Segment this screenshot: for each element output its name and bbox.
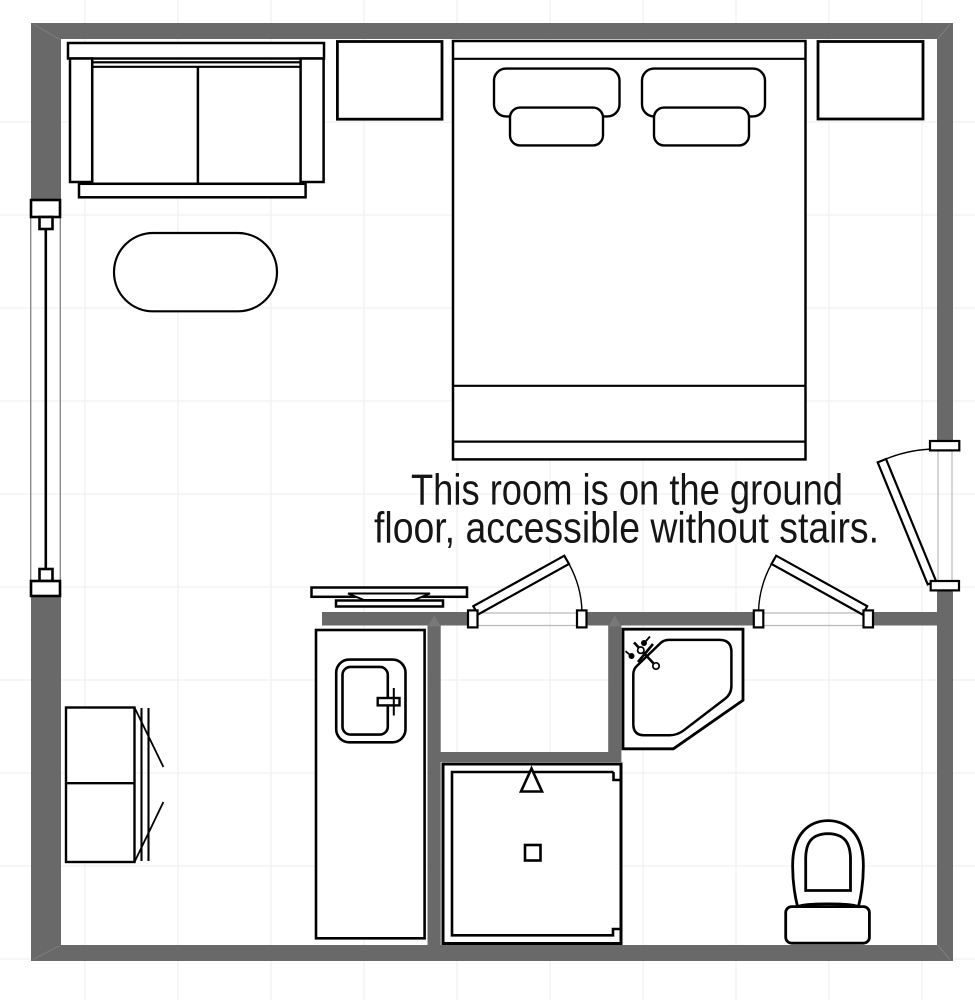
svg-text:floor, accessible without stai: floor, accessible without stairs.: [374, 504, 879, 553]
